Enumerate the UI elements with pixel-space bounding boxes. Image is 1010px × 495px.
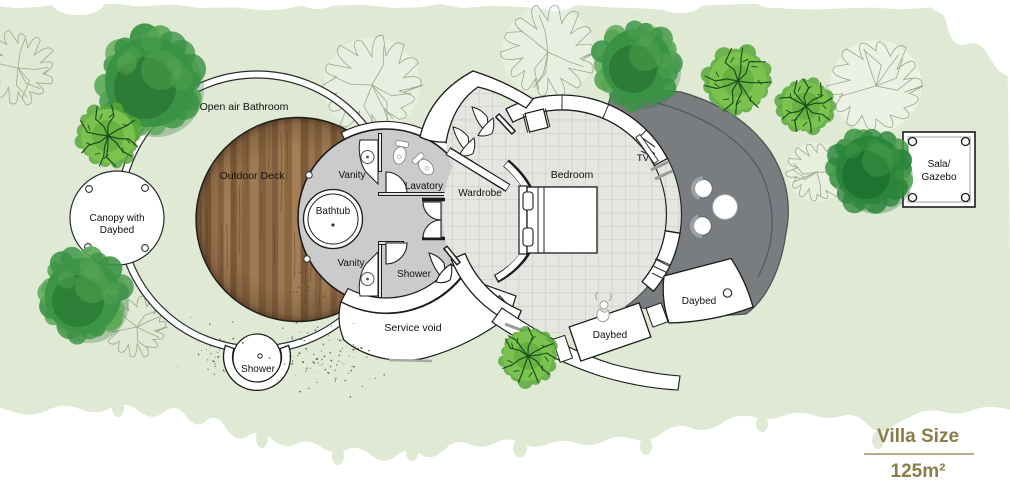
- svg-text:Shower: Shower: [241, 364, 276, 375]
- svg-text:Service void: Service void: [384, 322, 441, 334]
- svg-text:Daybed: Daybed: [682, 296, 716, 307]
- svg-text:Outdoor Deck: Outdoor Deck: [220, 170, 286, 182]
- svg-text:Bedroom: Bedroom: [551, 169, 594, 181]
- svg-text:Canopy with: Canopy with: [89, 213, 144, 224]
- svg-text:Vanity: Vanity: [338, 170, 365, 181]
- svg-text:125m²: 125m²: [891, 461, 946, 482]
- svg-text:Gazebo: Gazebo: [921, 172, 956, 183]
- svg-text:Bathtub: Bathtub: [316, 206, 351, 217]
- svg-text:Daybed: Daybed: [593, 330, 627, 341]
- svg-text:Shower: Shower: [397, 269, 432, 280]
- svg-text:Villa Size: Villa Size: [877, 426, 959, 447]
- svg-text:Lavatory: Lavatory: [405, 181, 443, 192]
- svg-text:Daybed: Daybed: [100, 225, 134, 236]
- svg-text:Vanity: Vanity: [337, 258, 364, 269]
- svg-text:TV: TV: [637, 153, 650, 164]
- svg-text:Sala/: Sala/: [928, 159, 951, 170]
- svg-text:Open air Bathroom: Open air Bathroom: [200, 101, 289, 113]
- svg-text:Wardrobe: Wardrobe: [458, 188, 502, 199]
